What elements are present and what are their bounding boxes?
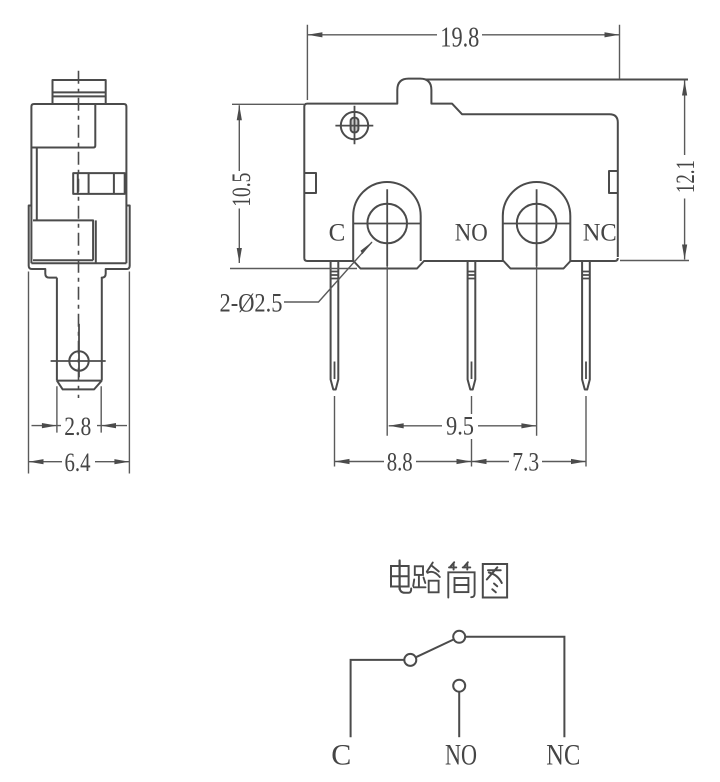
svg-text:6.4: 6.4 (65, 448, 91, 477)
svg-text:NO: NO (455, 220, 488, 247)
svg-text:NC: NC (546, 739, 580, 772)
svg-text:NC: NC (583, 220, 617, 247)
svg-text:2.8: 2.8 (64, 412, 91, 441)
svg-text:C: C (329, 220, 346, 247)
svg-text:NO: NO (445, 739, 477, 772)
svg-text:2-Ø2.5: 2-Ø2.5 (220, 289, 283, 318)
svg-text:9.5: 9.5 (446, 412, 474, 441)
svg-text:12.1: 12.1 (671, 160, 700, 193)
svg-text:C: C (331, 739, 351, 772)
svg-text:7.3: 7.3 (512, 448, 539, 477)
svg-text:10.5: 10.5 (227, 173, 256, 207)
svg-text:19.8: 19.8 (440, 22, 479, 54)
svg-text:8.8: 8.8 (387, 448, 413, 477)
